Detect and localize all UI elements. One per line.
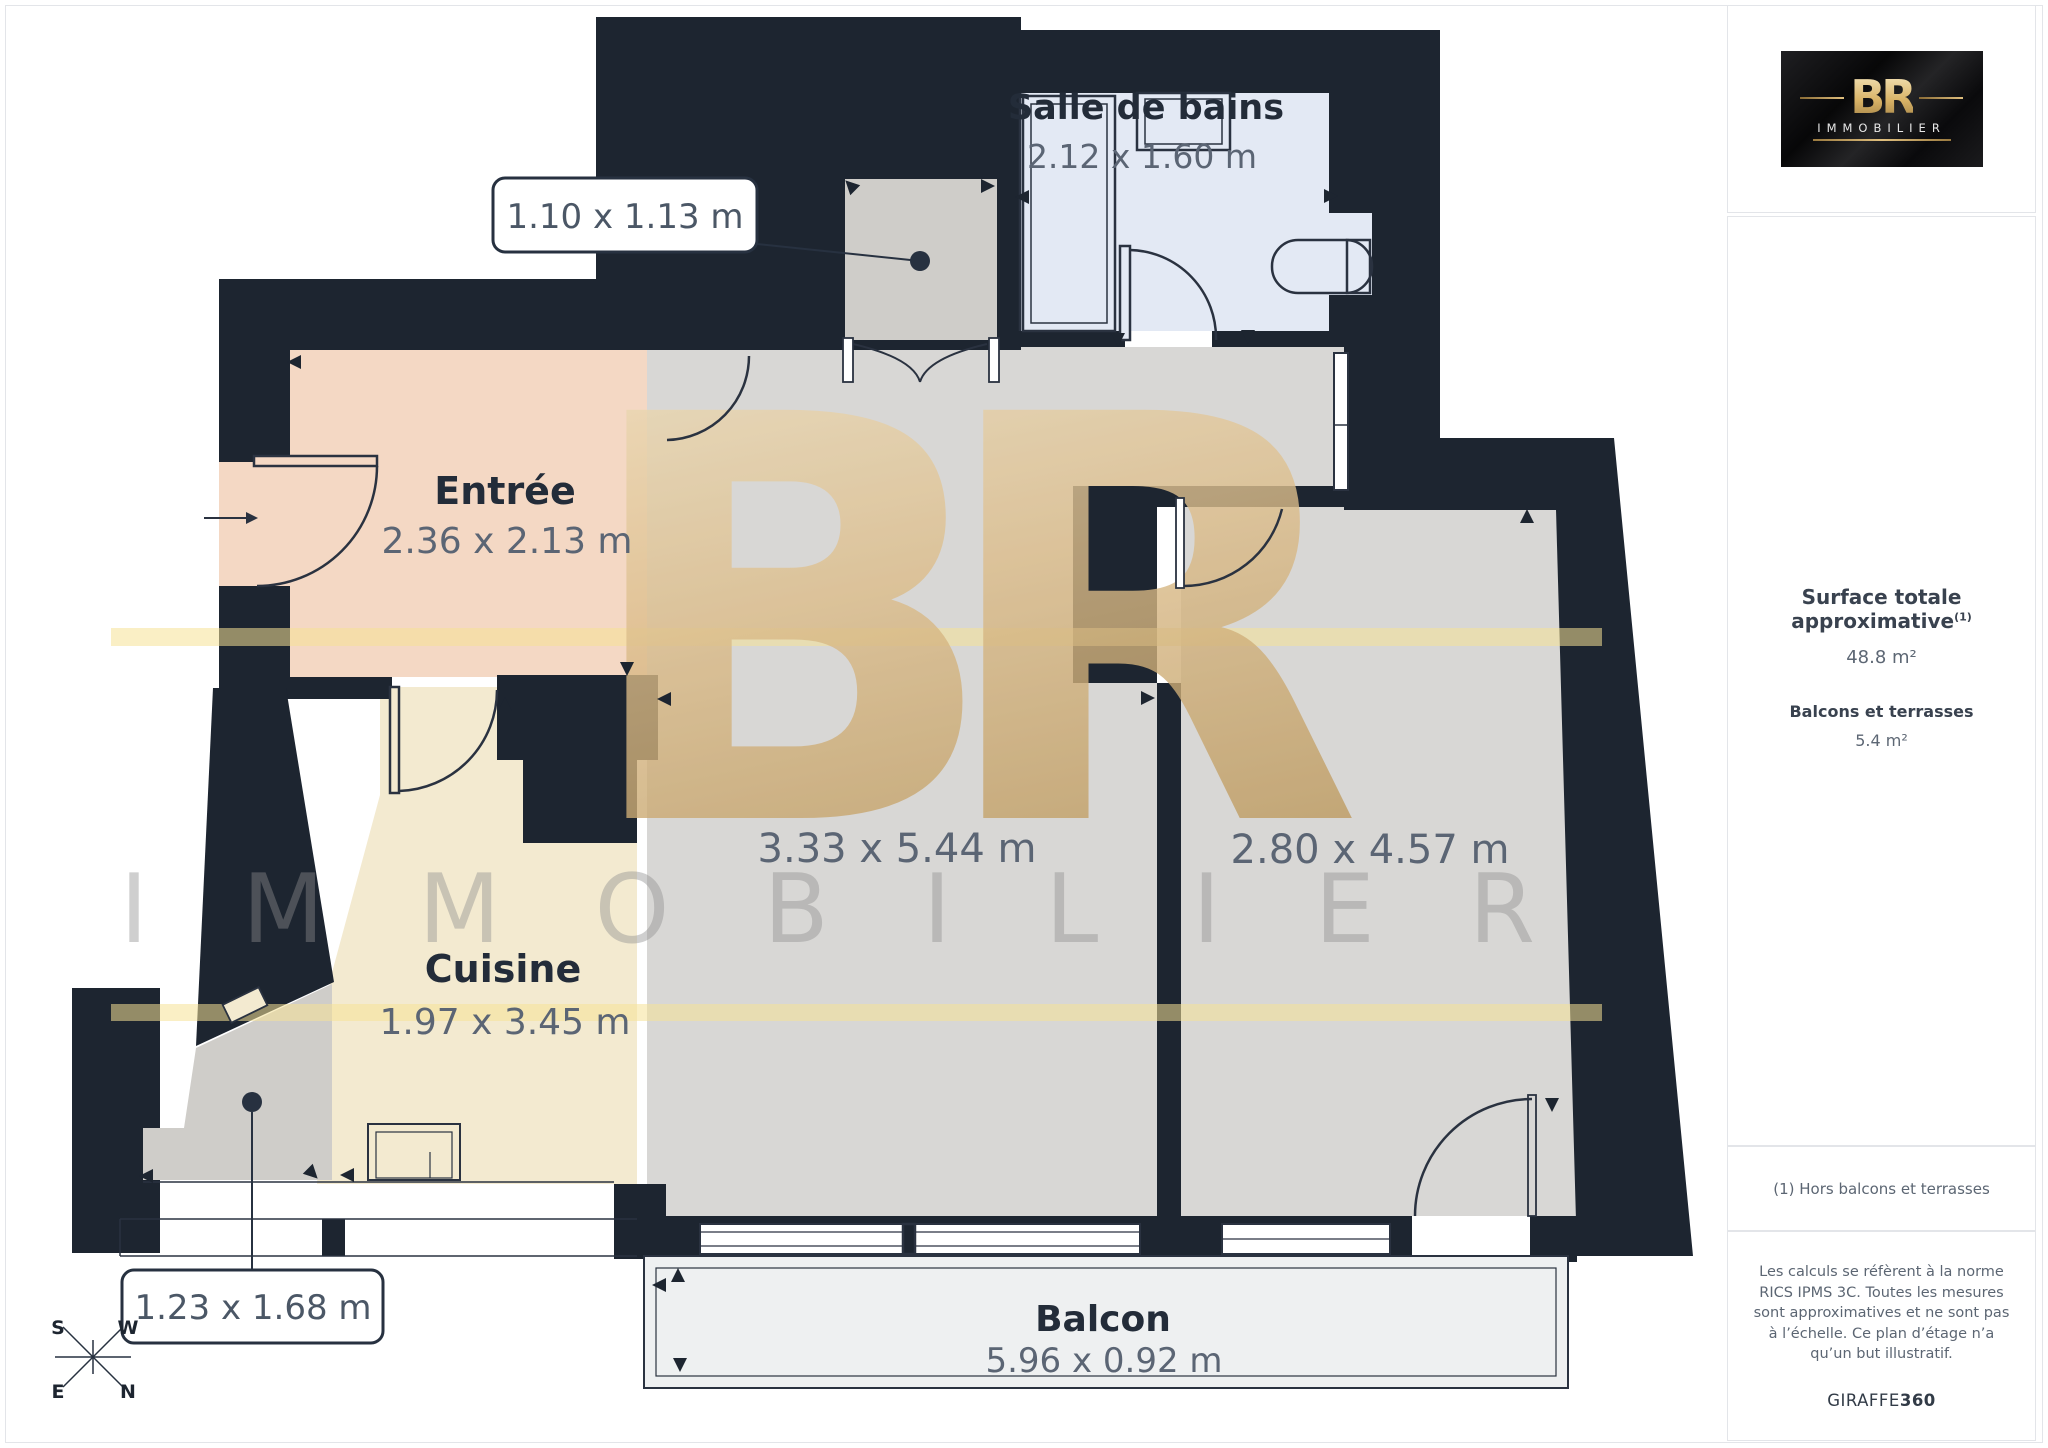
callout-dot-hall <box>910 251 930 271</box>
compass-w: W <box>118 1317 139 1339</box>
agency-logo: BR IMMOBILIER <box>1781 51 1983 167</box>
callout-dot-closet <box>242 1092 262 1112</box>
disclaimer-text: Les calculs se réfèrent à la norme RICS … <box>1748 1262 2016 1365</box>
room-dims-bedroom: 2.80 x 4.57 m <box>1231 827 1510 873</box>
entree-door-notch <box>219 462 290 586</box>
sidebar: BR IMMOBILIER Surface totale approximati… <box>1727 5 2038 1443</box>
room-dims-entree: 2.36 x 2.13 m <box>381 521 632 562</box>
room-label-balcon: Balcon <box>1035 1299 1171 1340</box>
callout-label-hall: 1.10 x 1.13 m <box>506 197 743 237</box>
balconies-value: 5.4 m² <box>1728 731 2035 750</box>
compass-s: S <box>51 1317 65 1339</box>
logo-rule-left <box>1800 97 1844 99</box>
room-label-entree: Entrée <box>434 469 575 513</box>
footnote-card: (1) Hors balcons et terrasses <box>1727 1146 2036 1231</box>
surface-title: Surface totale approximative(1) <box>1728 585 2035 633</box>
surface-value: 48.8 m² <box>1728 647 2035 668</box>
disclaimer-card: Les calculs se réfèrent à la norme RICS … <box>1727 1231 2036 1441</box>
floorplan-page: BR IMMOBILIER <box>0 0 2048 1448</box>
compass-n: N <box>120 1381 136 1403</box>
compass-e: E <box>52 1381 65 1403</box>
room-label-salle-de-bains: Salle de bains <box>1008 88 1284 128</box>
logo-card: BR IMMOBILIER <box>1727 5 2036 213</box>
room-dims-cuisine: 1.97 x 3.45 m <box>379 1002 630 1043</box>
room-dims-salle-de-bains: 2.12 x 1.60 m <box>1027 137 1257 176</box>
compass-labels: S W E N <box>51 1317 138 1403</box>
surface-card: Surface totale approximative(1) 48.8 m² … <box>1727 216 2036 1146</box>
callout-label-closet: 1.23 x 1.68 m <box>134 1288 371 1328</box>
watermark-band-bottom <box>111 1004 1602 1021</box>
footnote: (1) Hors balcons et terrasses <box>1773 1180 1990 1198</box>
surface-footnote-ref: (1) <box>1954 610 1972 623</box>
brand-logo: GIRAFFE360 <box>1728 1391 2035 1410</box>
logo-monogram: BR <box>1850 77 1912 118</box>
logo-underline <box>1813 139 1951 141</box>
room-dims-balcon: 5.96 x 0.92 m <box>985 1341 1222 1381</box>
room-dims-living: 3.33 x 5.44 m <box>758 826 1037 872</box>
room-bathroom-fill <box>1021 93 1329 331</box>
logo-rule-right <box>1919 97 1963 99</box>
logo-word: IMMOBILIER <box>1817 121 1946 135</box>
floor-plan: BR IMMOBILIER <box>0 0 1727 1448</box>
room-label-cuisine: Cuisine <box>425 947 581 991</box>
balconies-title: Balcons et terrasses <box>1728 702 2035 721</box>
